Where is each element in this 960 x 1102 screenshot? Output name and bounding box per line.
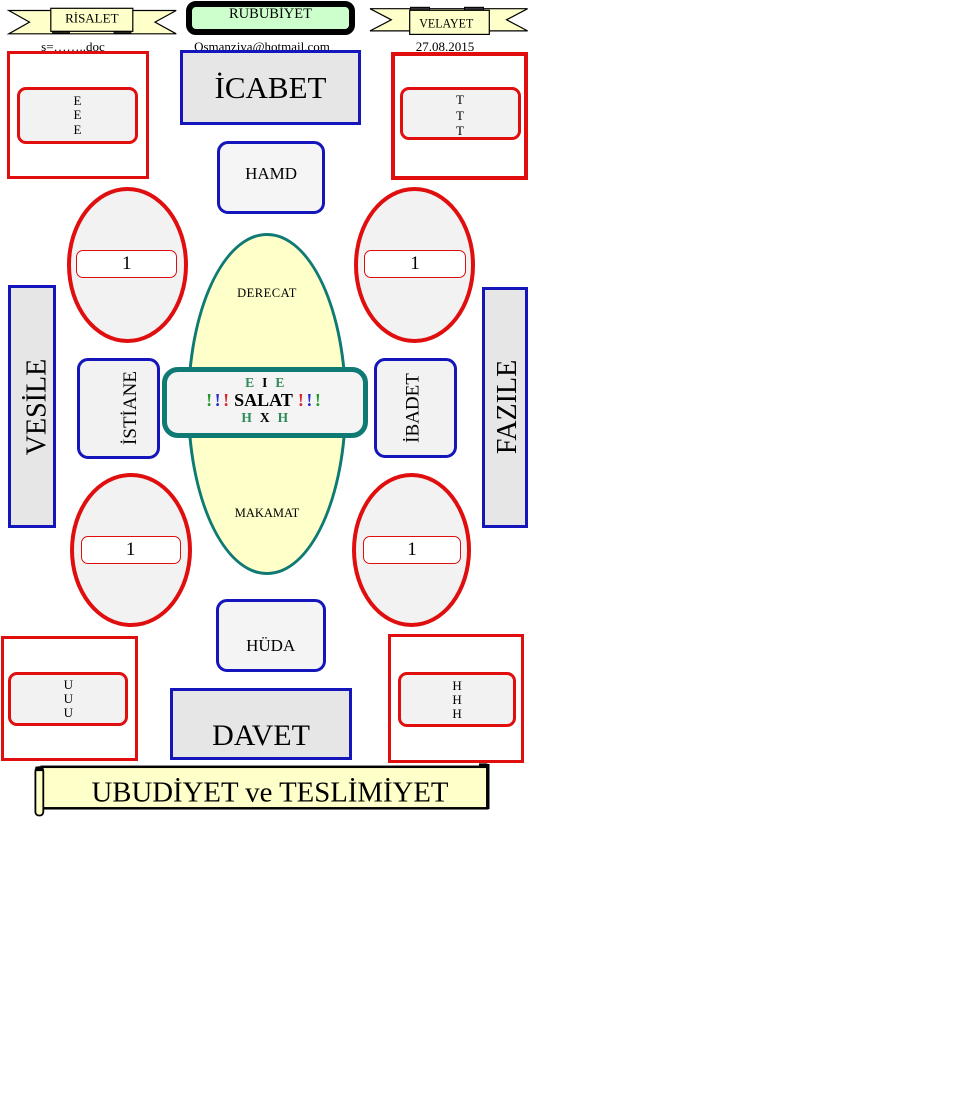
svg-text:RİSALET: RİSALET — [65, 11, 119, 26]
svg-text:UBUDİYET ve TESLİMİYET: UBUDİYET ve TESLİMİYET — [92, 777, 449, 809]
svg-text:VELAYET: VELAYET — [419, 15, 473, 30]
